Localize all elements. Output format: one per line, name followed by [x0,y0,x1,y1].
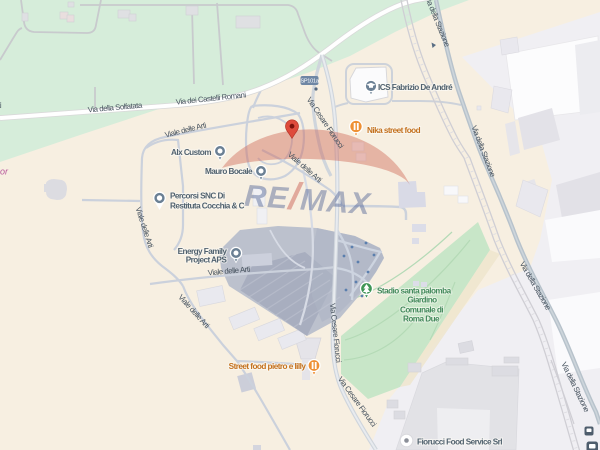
svg-text:ICS Fabrizio De André: ICS Fabrizio De André [378,83,453,92]
svg-text:Percorsi SNC Di: Percorsi SNC Di [170,192,225,201]
svg-text:Project APS: Project APS [186,256,228,265]
svg-text:Roma Due: Roma Due [403,315,440,324]
svg-text:Comunale di: Comunale di [400,306,443,315]
svg-text:Street food pietro e lilly: Street food pietro e lilly [229,362,307,371]
svg-text:Fiorucci Food Service Srl: Fiorucci Food Service Srl [417,438,502,447]
svg-text:SP101a: SP101a [300,79,319,85]
svg-text:Giardino: Giardino [407,296,437,305]
svg-text:or: or [0,167,9,177]
svg-text:Restituta Cocchia & C: Restituta Cocchia & C [170,202,245,211]
svg-text:Nika street food: Nika street food [367,126,421,135]
svg-text:Mauro Bocale: Mauro Bocale [205,167,253,176]
svg-text:Alx Custom: Alx Custom [171,148,211,157]
svg-text:Stadio santa palomba: Stadio santa palomba [377,286,452,295]
